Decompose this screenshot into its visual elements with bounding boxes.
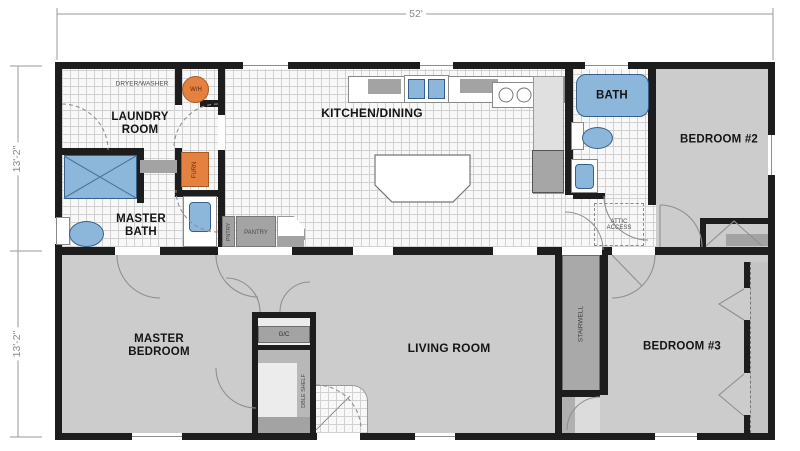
wall-segment	[555, 390, 600, 397]
wall-segment	[655, 247, 775, 255]
wall-segment	[537, 247, 562, 255]
room-label-living-room: LIVING ROOM	[408, 342, 491, 356]
stairwell-label: STAIRWELL	[578, 306, 585, 342]
wall-segment	[744, 262, 750, 288]
room-label-master-bedroom: MASTER BEDROOM	[128, 333, 189, 359]
window	[132, 433, 182, 440]
wall-segment	[55, 244, 62, 440]
wall-segment	[360, 433, 415, 440]
pantry-label: PANTRY	[244, 230, 268, 236]
wall-segment	[310, 312, 316, 433]
refrigerator	[532, 150, 564, 193]
shower	[64, 155, 137, 199]
wall-segment	[744, 320, 750, 373]
bedroom3-closet	[750, 262, 768, 433]
double-shelf-label: DBLE SHELF	[301, 374, 307, 408]
wall-segment	[62, 148, 144, 155]
toilet-bowl	[69, 221, 104, 247]
wall-segment	[648, 62, 656, 205]
room-label-bedroom2: BEDROOM #2	[680, 133, 758, 146]
window	[420, 62, 453, 69]
floor-plan: W/H FURN DRYER/WASHER PNTRY PANTRY ATTIC…	[0, 0, 800, 451]
dimension-height-bottom: 13'-2"	[11, 328, 23, 361]
wall-segment	[55, 62, 62, 218]
counter-cabinet	[368, 79, 401, 94]
dimension-height-top: 13'-2"	[11, 143, 23, 176]
water-heater-label: W/H	[190, 87, 202, 93]
floor-entry	[312, 385, 368, 433]
wall-segment	[744, 415, 750, 433]
wall-segment	[555, 255, 562, 433]
kitchen-sink-right	[428, 79, 445, 99]
dryer-washer-label: DRYER/WASHER	[116, 81, 169, 88]
wall-segment	[175, 69, 182, 105]
garment-closet-label: G/C	[279, 332, 290, 338]
room-label-bath: BATH	[596, 89, 628, 102]
room-label-laundry: LAUNDRY ROOM	[111, 111, 168, 137]
wall-segment	[602, 247, 612, 255]
wall-segment	[218, 69, 225, 115]
window	[655, 433, 697, 440]
wall-segment	[292, 247, 353, 255]
wall-segment	[700, 220, 706, 247]
kitchen-sink-left	[408, 79, 425, 99]
dimension-width: 52'	[406, 8, 426, 20]
window	[415, 433, 455, 440]
wall-segment	[573, 193, 605, 199]
attic-access-label: ATTIC ACCESS	[607, 219, 632, 231]
wall-segment	[393, 247, 493, 255]
sink	[575, 164, 594, 189]
wall-segment	[768, 175, 775, 440]
toilet-bowl	[582, 127, 613, 149]
wall-segment	[55, 247, 115, 255]
closet-base	[258, 417, 310, 433]
wall-segment	[600, 255, 608, 395]
wall-segment	[137, 148, 144, 203]
wall-segment	[55, 62, 243, 69]
pantry-cabinet-label: PNTRY	[226, 223, 232, 242]
wall-segment	[288, 62, 420, 69]
room-label-bedroom3: BEDROOM #3	[643, 340, 721, 353]
wall-segment	[697, 433, 775, 440]
window	[768, 135, 775, 175]
window	[243, 62, 288, 69]
wall-segment	[200, 100, 222, 107]
stair-closet-shelf	[562, 397, 575, 433]
furnace-label: FURN	[192, 162, 198, 179]
room-label-master-bath: MASTER BATH	[116, 213, 166, 239]
sink	[189, 202, 211, 232]
pantry-counter-base	[277, 236, 304, 247]
wall-segment	[160, 247, 218, 255]
closet-shelf	[726, 234, 768, 246]
vanity-cabinet	[140, 160, 177, 173]
wall-segment	[700, 218, 768, 224]
wall-segment	[182, 433, 317, 440]
toilet-tank	[56, 217, 70, 245]
window	[585, 62, 628, 69]
wall-segment	[55, 433, 132, 440]
wall-segment	[455, 433, 655, 440]
wall-segment	[252, 312, 316, 318]
cooktop	[492, 82, 536, 108]
wall-segment	[768, 62, 775, 135]
room-label-kitchen-dining: KITCHEN/DINING	[321, 107, 422, 121]
